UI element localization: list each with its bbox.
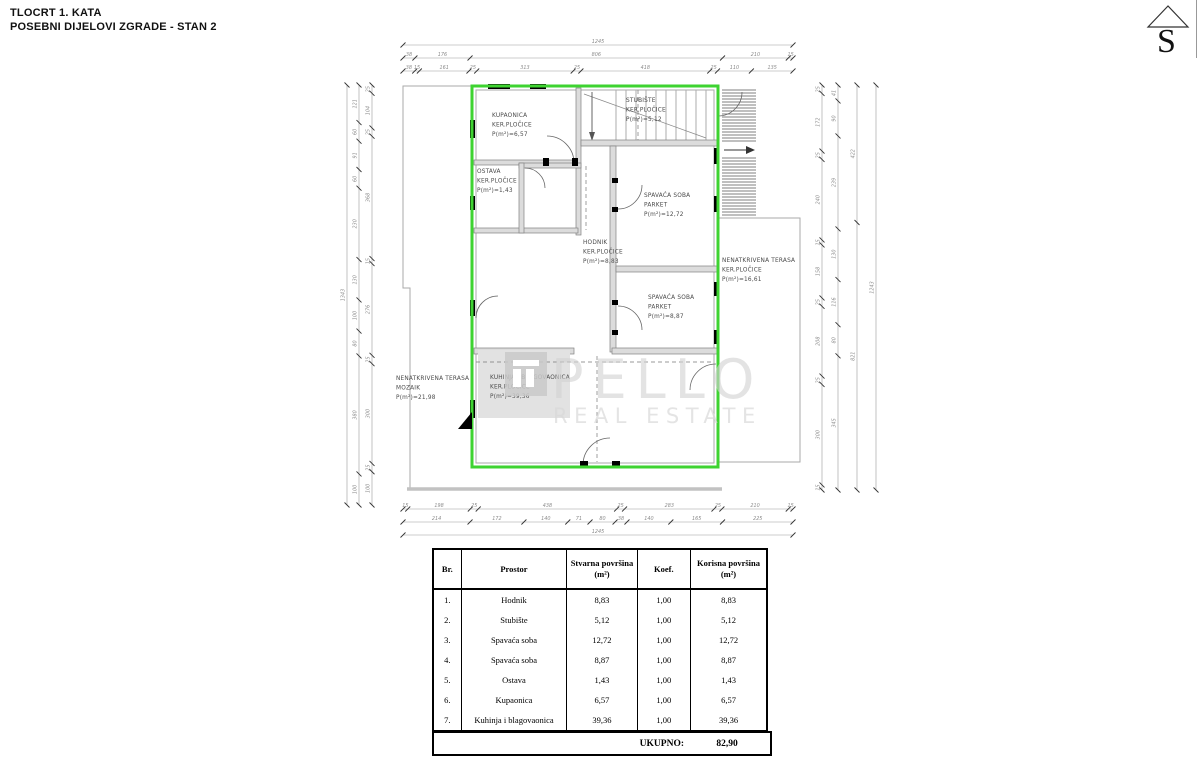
- room-label-hodnik: HODNIK: [583, 240, 607, 246]
- dimension-value: 300: [816, 430, 822, 439]
- dimension-value: 240: [816, 195, 822, 204]
- dimension-value: 380: [353, 410, 359, 419]
- dimension-value: 15: [816, 484, 822, 490]
- dimension-value: 25: [366, 356, 372, 362]
- table-cell: 1,00: [637, 650, 690, 670]
- dimension-value: 422: [851, 149, 857, 158]
- dimension-value: 368: [366, 193, 372, 202]
- table-row: 4.Spavaća soba8,871,008,87: [433, 650, 767, 670]
- dimension-value: 158: [816, 267, 822, 276]
- dimension-value: 104: [366, 106, 372, 115]
- table-row: 3.Spavaća soba12,721,0012,72: [433, 630, 767, 650]
- header-korisna: Korisna površina (m²): [691, 549, 768, 589]
- dimension-value: 821: [851, 352, 857, 361]
- dimension-value: 15: [788, 52, 794, 58]
- table-cell: 12,72: [567, 630, 637, 650]
- table-cell: 1,00: [637, 610, 690, 630]
- dimension-value: 91: [353, 152, 359, 158]
- table-cell: Ostava: [461, 670, 567, 690]
- dimension-value: 806: [592, 52, 601, 58]
- table-cell: 1.: [433, 589, 461, 610]
- room-label-terasa-lijevo: P(m²)=21,98: [396, 394, 436, 401]
- dimension-value: 198: [434, 503, 443, 509]
- dimension-value: 90: [832, 115, 838, 121]
- dimension-value: 15: [402, 503, 408, 509]
- dimension-value: 25: [617, 503, 623, 509]
- room-label-terasa-lijevo: NENATKRIVENA TERASA: [396, 376, 469, 382]
- dimension-value: 25: [816, 299, 822, 305]
- total-box: UKUPNO: 82,90: [432, 731, 772, 756]
- areas-table: Br. Prostor Stvarna površina (m²) Koef. …: [432, 548, 768, 732]
- dimension-value: 172: [492, 516, 501, 522]
- table-cell: 8,83: [691, 589, 768, 610]
- dimension-value: 100: [366, 484, 372, 493]
- table-cell: 7.: [433, 710, 461, 731]
- dimension-value: 25: [574, 65, 580, 71]
- dimension-value: 438: [543, 503, 552, 509]
- dimension-value: 25: [816, 152, 822, 158]
- table-row: 2.Stubište5,121,005,12: [433, 610, 767, 630]
- dimension-value: 140: [541, 516, 550, 522]
- header-stvarna: Stvarna površina (m²): [567, 549, 637, 589]
- table-row: 1.Hodnik8,831,008,83: [433, 589, 767, 610]
- dimension-value: 140: [644, 516, 653, 522]
- dimension-value: 25: [710, 65, 716, 71]
- table-cell: Kuhinja i blagovaonica: [461, 710, 567, 731]
- room-label-kupaonica: KER.PLOČICE: [492, 122, 532, 129]
- room-label-terasa-desno: KER.PLOČICE: [722, 267, 762, 274]
- dimension-value: 313: [520, 65, 529, 71]
- dimension-value: 25: [816, 86, 822, 92]
- dimension-value: 208: [816, 336, 822, 345]
- terrace-outline-left: [403, 86, 722, 490]
- dimension-value: 239: [832, 178, 838, 187]
- table-row: 5.Ostava1,431,001,43: [433, 670, 767, 690]
- table-cell: Spavaća soba: [461, 630, 567, 650]
- table-cell: Kupaonica: [461, 690, 567, 710]
- table-cell: 1,00: [637, 670, 690, 690]
- table-cell: 1,00: [637, 710, 690, 731]
- dimension-value: 100: [353, 311, 359, 320]
- table-cell: 3.: [433, 630, 461, 650]
- dimension-value: 165: [692, 516, 701, 522]
- dimension-value: 25: [366, 86, 372, 92]
- room-label-stubiste: STUBIŠTE: [626, 97, 656, 104]
- header-br: Br.: [433, 549, 461, 589]
- room-label-hodnik: KER.PLOČICE: [583, 249, 623, 256]
- table-cell: 39,36: [567, 710, 637, 731]
- room-label-ostava: KER.PLOČICE: [477, 178, 517, 185]
- table-cell: 39,36: [691, 710, 768, 731]
- room-label-hodnik: P(m²)=8,83: [583, 258, 619, 265]
- room-label-spavaca-soba-2: PARKET: [648, 305, 672, 311]
- dimension-value: 15: [816, 239, 822, 245]
- exit-arrow-icon: [724, 146, 755, 154]
- table-cell: 5,12: [691, 610, 768, 630]
- dimension-value: 161: [439, 65, 448, 71]
- room-label-terasa-lijevo: MOZAIK: [396, 386, 420, 392]
- table-cell: 6,57: [691, 690, 768, 710]
- dimension-value: 230: [353, 219, 359, 228]
- room-label-ostava: P(m²)=1,43: [477, 187, 513, 194]
- table-cell: 1,43: [567, 670, 637, 690]
- dimension-value: 41: [832, 90, 838, 96]
- dimension-value: 418: [641, 65, 650, 71]
- table-cell: Stubište: [461, 610, 567, 630]
- table-cell: 8,87: [567, 650, 637, 670]
- room-label-spavaca-soba-2: P(m²)=8,87: [648, 313, 684, 320]
- table-cell: 6.: [433, 690, 461, 710]
- total-label: UKUPNO:: [640, 739, 684, 749]
- dimension-value: 214: [432, 516, 441, 522]
- dimension-value: 1245: [592, 529, 604, 535]
- table-cell: Spavaća soba: [461, 650, 567, 670]
- dimension-value: 225: [753, 516, 762, 522]
- dimension-value: 121: [353, 99, 359, 108]
- dimension-value: 100: [353, 485, 359, 494]
- dimension-value: 80: [832, 337, 838, 343]
- dimension-value: 38: [406, 65, 412, 71]
- table-cell: 5.: [433, 670, 461, 690]
- room-label-spavaca-soba-1: SPAVAĆA SOBA: [644, 192, 690, 199]
- table-cell: 1,00: [637, 589, 690, 610]
- room-label-terasa-desno: NENATKRIVENA TERASA: [722, 258, 795, 264]
- dimension-value: 1243: [870, 281, 876, 293]
- dimension-value: 276: [366, 305, 372, 314]
- room-label-spavaca-soba-1: P(m²)=12,72: [644, 211, 684, 218]
- dimension-value: 130: [353, 275, 359, 284]
- dimension-value: 25: [366, 464, 372, 470]
- room-label-stubiste: P(m²)=5,12: [626, 116, 662, 123]
- room-label-stubiste: KER.PLOČICE: [626, 107, 666, 114]
- dimension-value: 116: [832, 297, 838, 306]
- table-cell: 2.: [433, 610, 461, 630]
- dimension-value: 300: [366, 409, 372, 418]
- floor-plan-svg: KUPAONICAKER.PLOČICEP(m²)=6,57STUBIŠTEKE…: [0, 0, 1200, 545]
- table-header-row: Br. Prostor Stvarna površina (m²) Koef. …: [433, 549, 767, 589]
- header-prostor: Prostor: [461, 549, 567, 589]
- dimension-value: 135: [768, 65, 777, 71]
- dimension-value: 38: [618, 516, 624, 522]
- table-row: 6.Kupaonica6,571,006,57: [433, 690, 767, 710]
- dimension-value: 38: [406, 52, 412, 58]
- watermark-brand: PELLO: [551, 348, 763, 411]
- table-cell: 4.: [433, 650, 461, 670]
- dimension-value: 80: [353, 340, 359, 346]
- room-label-terasa-desno: P(m²)=16,61: [722, 276, 762, 283]
- dimension-value: 110: [730, 65, 739, 71]
- dimension-value: 15: [788, 503, 794, 509]
- dimension-value: 71: [576, 516, 582, 522]
- room-label-spavaca-soba-2: SPAVAĆA SOBA: [648, 294, 694, 301]
- dimension-value: 25: [816, 377, 822, 383]
- table-row: 7.Kuhinja i blagovaonica39,361,0039,36: [433, 710, 767, 731]
- room-label-kupaonica: P(m²)=6,57: [492, 131, 528, 138]
- page: TLOCRT 1. KATA POSEBNI DIJELOVI ZGRADE -…: [0, 0, 1200, 764]
- dimension-value: 15: [366, 258, 372, 264]
- table-cell: 5,12: [567, 610, 637, 630]
- room-label-ostava: OSTAVA: [477, 169, 501, 175]
- table-cell: 6,57: [567, 690, 637, 710]
- dimension-value: 25: [470, 65, 476, 71]
- table-cell: 1,00: [637, 690, 690, 710]
- dimension-value: 25: [715, 503, 721, 509]
- table-cell: Hodnik: [461, 589, 567, 610]
- dimension-value: 1343: [341, 289, 347, 301]
- dimension-value: 25: [366, 129, 372, 135]
- total-value: 82,90: [684, 739, 770, 749]
- direction-triangle: [458, 412, 472, 429]
- dimension-value: 283: [665, 503, 674, 509]
- table-cell: 8,87: [691, 650, 768, 670]
- table-cell: 1,43: [691, 670, 768, 690]
- dimension-value: 130: [832, 250, 838, 259]
- dimension-value: 210: [751, 52, 760, 58]
- table-cell: 12,72: [691, 630, 768, 650]
- dimension-value: 172: [816, 118, 822, 127]
- table-cell: 1,00: [637, 630, 690, 650]
- dimension-value: 60: [353, 129, 359, 135]
- dimension-value: 1245: [592, 39, 604, 45]
- dimension-value: 176: [438, 52, 447, 58]
- room-label-spavaca-soba-1: PARKET: [644, 203, 668, 209]
- dimension-value: 210: [750, 503, 759, 509]
- room-label-kupaonica: KUPAONICA: [492, 113, 527, 119]
- dimension-value: 60: [353, 176, 359, 182]
- table-cell: 8,83: [567, 589, 637, 610]
- dimension-value: 15: [414, 65, 420, 71]
- watermark-sub: REAL ESTATE: [553, 404, 762, 428]
- header-koef: Koef.: [637, 549, 690, 589]
- hatched-area: [722, 90, 756, 215]
- dimension-value: 25: [471, 503, 477, 509]
- dimension-value: 80: [599, 516, 605, 522]
- dimension-value: 345: [832, 418, 838, 427]
